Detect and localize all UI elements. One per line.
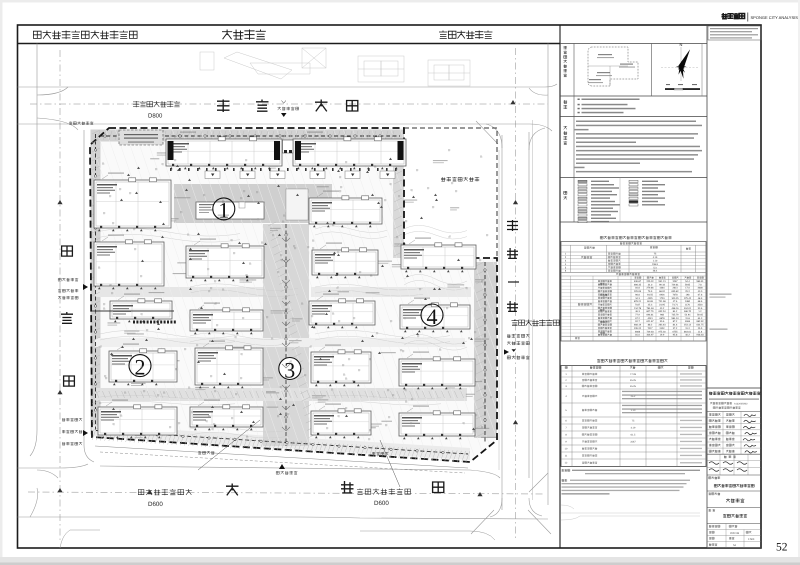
svg-text:634.75: 634.75 [696, 324, 704, 327]
svg-text:652.54: 652.54 [658, 310, 666, 313]
svg-text:4.19: 4.19 [631, 426, 636, 429]
svg-text:40.2: 40.2 [685, 334, 690, 337]
svg-text:878.21: 878.21 [634, 300, 642, 303]
svg-text:225.32: 225.32 [646, 280, 654, 283]
svg-text:655.82: 655.82 [671, 290, 679, 293]
svg-text:17.0: 17.0 [685, 287, 690, 290]
svg-text:335.22: 335.22 [634, 327, 642, 330]
svg-text:7678: 7678 [672, 293, 678, 296]
svg-text:SPONGE CITY ANALYSIS: SPONGE CITY ANALYSIS [751, 15, 799, 20]
svg-text:54.4: 54.4 [685, 280, 690, 283]
svg-text:N: N [680, 42, 683, 47]
svg-text:79.9: 79.9 [648, 290, 653, 293]
svg-text:3: 3 [284, 358, 295, 383]
svg-text:4.19: 4.19 [653, 256, 658, 259]
svg-text:59.65: 59.65 [697, 314, 703, 317]
svg-text:589.91: 589.91 [696, 280, 704, 283]
svg-text:6668: 6668 [635, 330, 641, 333]
svg-text:938.48: 938.48 [696, 334, 704, 337]
svg-text:64.3: 64.3 [698, 317, 703, 320]
svg-text:7017: 7017 [647, 327, 653, 330]
svg-text:404.01: 404.01 [684, 307, 692, 310]
svg-text:3480: 3480 [685, 300, 691, 303]
svg-text:696.81: 696.81 [646, 314, 654, 317]
svg-text:95.8: 95.8 [673, 334, 678, 337]
svg-text:25.2: 25.2 [685, 290, 690, 293]
svg-text:23.95: 23.95 [659, 304, 665, 307]
svg-text:93.55: 93.55 [647, 293, 653, 296]
svg-text:591.13: 591.13 [658, 280, 666, 283]
svg-text:7187: 7187 [635, 304, 641, 307]
svg-text:34.3: 34.3 [635, 297, 640, 300]
svg-text:5935: 5935 [685, 283, 691, 286]
svg-text:84.8: 84.8 [635, 287, 640, 290]
svg-text:D600: D600 [374, 500, 389, 507]
svg-text:77.08: 77.08 [630, 373, 637, 376]
svg-text:735.79: 735.79 [671, 314, 679, 317]
svg-text:975.30: 975.30 [658, 330, 666, 333]
svg-text:784.48: 784.48 [646, 307, 654, 310]
svg-text:2452: 2452 [659, 327, 665, 330]
svg-text:4043: 4043 [647, 317, 653, 320]
svg-text:45.05: 45.05 [630, 379, 637, 382]
svg-text:158.9: 158.9 [652, 263, 658, 266]
svg-text:50.6: 50.6 [660, 320, 665, 323]
svg-text:D800: D800 [148, 112, 163, 119]
svg-text:88.2: 88.2 [648, 324, 653, 327]
svg-text:468.16: 468.16 [671, 307, 679, 310]
svg-text:584.34: 584.34 [671, 317, 679, 320]
svg-text:84.6: 84.6 [673, 324, 678, 327]
svg-text:4: 4 [427, 304, 438, 329]
svg-text:28.4: 28.4 [653, 270, 658, 273]
svg-text:52: 52 [776, 542, 788, 554]
svg-text:25.3: 25.3 [648, 304, 653, 307]
svg-text:34.0: 34.0 [648, 283, 653, 286]
svg-text:68.92: 68.92 [659, 290, 665, 293]
svg-text:D600: D600 [148, 501, 163, 508]
svg-text:52.94: 52.94 [685, 314, 691, 317]
svg-text:68.6: 68.6 [698, 300, 703, 303]
svg-text:3520: 3520 [697, 304, 703, 307]
svg-text:639.87: 639.87 [634, 280, 642, 283]
svg-text:31.8: 31.8 [685, 317, 690, 320]
svg-text:45.05: 45.05 [630, 385, 637, 388]
svg-text:77.9: 77.9 [635, 314, 640, 317]
svg-text:53.6: 53.6 [698, 307, 703, 310]
svg-text:A132005902: A132005902 [734, 403, 748, 406]
svg-text:19.9: 19.9 [660, 334, 665, 337]
svg-text:4384: 4384 [659, 287, 665, 290]
svg-text:729.81: 729.81 [671, 283, 679, 286]
svg-text:61.5: 61.5 [631, 433, 636, 436]
svg-text:92.7: 92.7 [635, 320, 640, 323]
svg-text:31.2: 31.2 [685, 327, 690, 330]
svg-text:3167: 3167 [630, 440, 636, 443]
svg-text:6926: 6926 [659, 293, 665, 296]
svg-text:253.12: 253.12 [684, 324, 692, 327]
svg-text:749.48: 749.48 [646, 330, 654, 333]
svg-text:283.63: 283.63 [658, 324, 666, 327]
svg-text:99.33: 99.33 [659, 283, 665, 286]
svg-text:863.61: 863.61 [684, 330, 692, 333]
svg-text:60.69: 60.69 [647, 300, 653, 303]
svg-text:43.0: 43.0 [698, 290, 703, 293]
svg-text:698.35: 698.35 [634, 283, 642, 286]
svg-text:11.6: 11.6 [698, 330, 703, 333]
svg-text:325.99: 325.99 [634, 290, 642, 293]
svg-text:1753: 1753 [659, 297, 665, 300]
svg-text:2022.08: 2022.08 [730, 532, 740, 535]
svg-text:306.97: 306.97 [646, 334, 654, 337]
svg-text:87.2: 87.2 [673, 320, 678, 323]
svg-text:81.0: 81.0 [635, 334, 640, 337]
svg-text:67.8: 67.8 [698, 293, 703, 296]
svg-text:6878: 6878 [659, 317, 665, 320]
svg-text:982.92: 982.92 [696, 320, 704, 323]
svg-text:134.78: 134.78 [634, 307, 642, 310]
svg-text:43.2: 43.2 [660, 307, 665, 310]
svg-text:67.2: 67.2 [635, 317, 640, 320]
svg-text:4325: 4325 [647, 297, 653, 300]
svg-text:300.25: 300.25 [671, 297, 679, 300]
svg-text:1170: 1170 [685, 304, 691, 307]
svg-text:621.67: 621.67 [646, 320, 654, 323]
svg-text:4966: 4966 [685, 320, 691, 323]
svg-text:3267: 3267 [672, 280, 678, 283]
svg-text:486.70: 486.70 [684, 310, 692, 313]
svg-text:84.2: 84.2 [673, 310, 678, 313]
svg-text:3608: 3608 [697, 287, 703, 290]
svg-text:6755: 6755 [672, 330, 678, 333]
svg-text:1:500: 1:500 [748, 538, 755, 541]
svg-text:731.98: 731.98 [658, 300, 666, 303]
svg-text:25.5: 25.5 [698, 327, 703, 330]
svg-text:73.71: 73.71 [672, 304, 678, 307]
svg-text:47.6: 47.6 [673, 300, 678, 303]
svg-text:2813: 2813 [672, 287, 678, 290]
svg-text:48.9: 48.9 [698, 297, 703, 300]
svg-text:37.2: 37.2 [673, 327, 678, 330]
svg-text:375.42: 375.42 [684, 297, 692, 300]
svg-text:98.8: 98.8 [635, 293, 640, 296]
svg-text:807.79: 807.79 [646, 310, 654, 313]
svg-text:279.86: 279.86 [646, 287, 654, 290]
svg-text:1.10: 1.10 [653, 260, 658, 263]
svg-text:668.19: 668.19 [634, 324, 642, 327]
svg-text:46.3: 46.3 [635, 310, 640, 313]
